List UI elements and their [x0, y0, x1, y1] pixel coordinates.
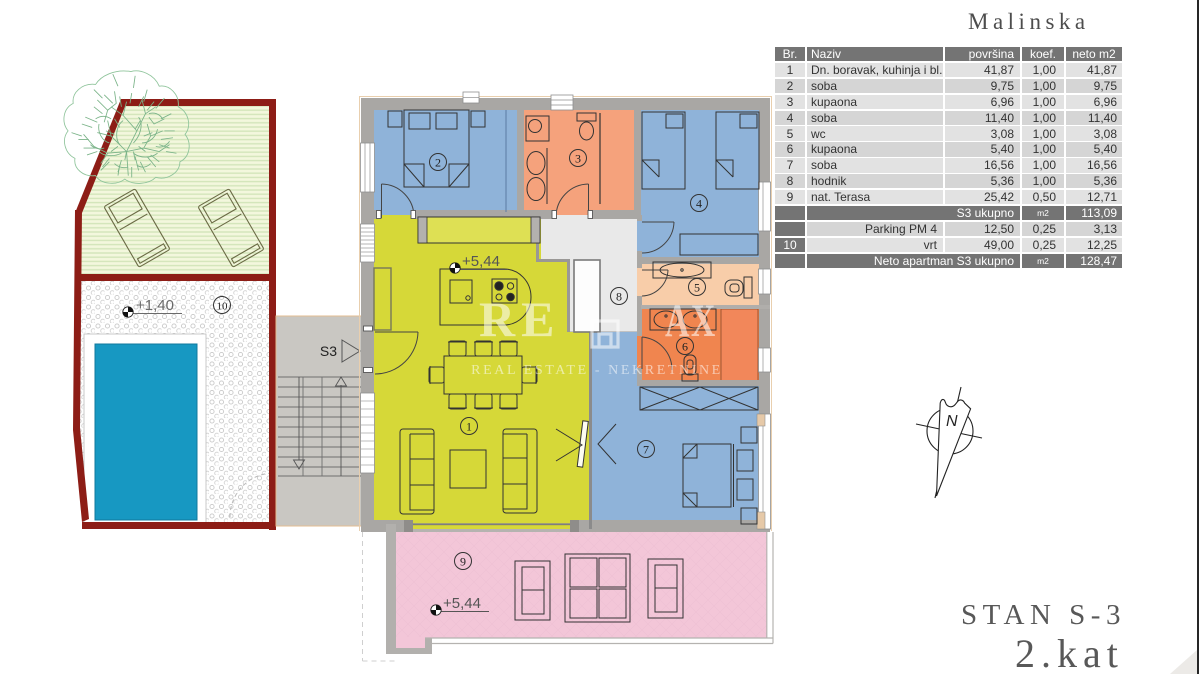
- svg-text:REAL ESTATE - NEKRETNINE: REAL ESTATE - NEKRETNINE: [471, 363, 723, 378]
- svg-text:9: 9: [460, 555, 466, 569]
- svg-text:8: 8: [616, 290, 622, 304]
- svg-text:N: N: [946, 413, 958, 430]
- svg-text:4: 4: [696, 197, 702, 211]
- svg-text:+1,40: +1,40: [136, 297, 174, 314]
- svg-text:AX: AX: [665, 295, 717, 347]
- svg-text:3: 3: [575, 152, 581, 166]
- svg-text:+5,44: +5,44: [462, 253, 500, 270]
- svg-text:7: 7: [643, 443, 649, 457]
- svg-text:RE: RE: [479, 291, 560, 347]
- svg-text:10: 10: [217, 301, 229, 313]
- svg-text:+5,44: +5,44: [443, 595, 481, 612]
- svg-text:S3: S3: [320, 343, 337, 359]
- svg-text:1: 1: [466, 420, 472, 434]
- svg-text:5: 5: [694, 281, 700, 295]
- svg-text:2: 2: [435, 156, 441, 170]
